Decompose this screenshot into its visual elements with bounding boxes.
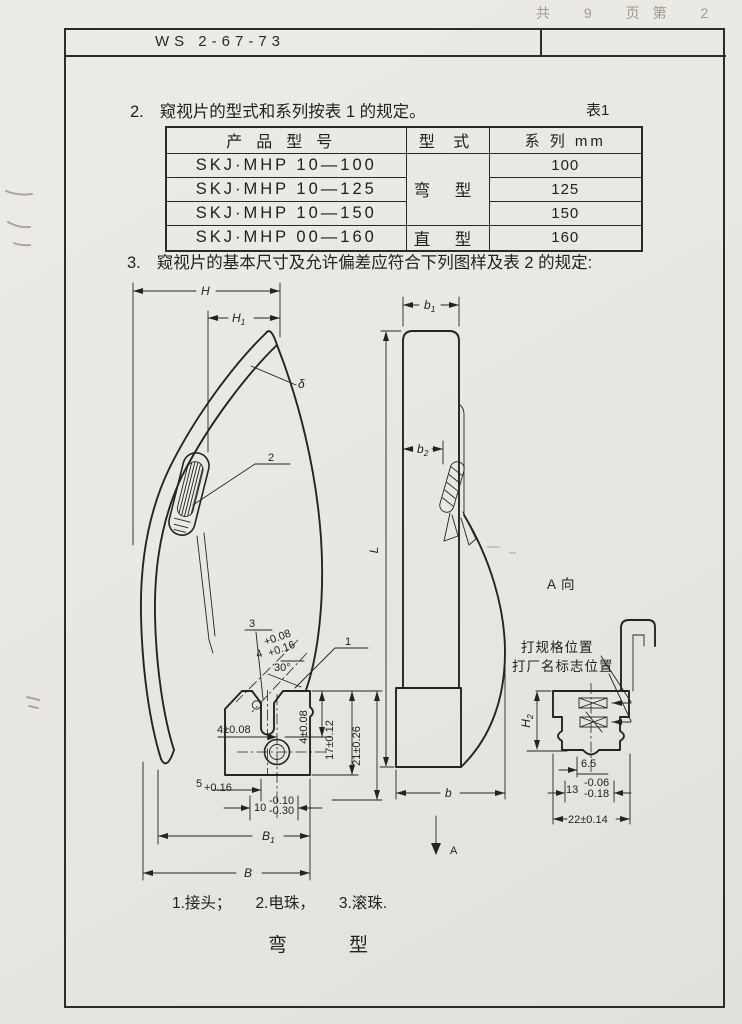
part-3-label: 3	[249, 618, 255, 630]
legend-item-2: 2.电珠，	[255, 891, 314, 913]
dim-B-label: B	[244, 866, 252, 880]
dim-H1-label: H1	[232, 311, 246, 327]
dim-13-label: 13	[566, 784, 578, 796]
dim-delta-label: δ	[298, 377, 305, 391]
dim-6-5-label: 6.5	[581, 758, 596, 770]
parts-legend: 1.接头； 2.电珠， 3.滚珠.	[172, 891, 387, 913]
part-1-label: 1	[345, 636, 351, 648]
dim-4-right-label: 4±0.08	[298, 710, 310, 744]
right-view-A: A 向 打规格位置 打厂名标志位置 H2 6	[512, 577, 655, 826]
dim-22-label: 22±0.14	[568, 814, 608, 826]
dim-L-label: L	[367, 547, 381, 554]
dim-17-label: 17±0.12	[324, 720, 336, 760]
technical-drawing: H H1 δ 2 3 1 4 +0.08 +0.16 30°	[0, 0, 742, 1024]
middle-view-side: b1 b2 L b A	[367, 297, 505, 857]
dim-angle-label: 30°	[274, 662, 291, 674]
scanned-standard-page: 共 9 页第 2 页 WS 2-67-73 2.窥视片的型式和系列按表 1 的规…	[0, 0, 742, 1024]
part-2-label: 2	[268, 452, 274, 464]
view-A-title: A 向	[547, 577, 576, 592]
caption-char-bent: 弯	[268, 930, 287, 957]
dim-slot-width: 4 +0.08 +0.16	[251, 628, 297, 664]
dim-b1-label: b1	[424, 298, 436, 314]
svg-text:4: 4	[254, 648, 264, 661]
roller-ball	[252, 701, 260, 709]
dim-b-label: b	[445, 786, 452, 800]
dim-B1-label: B1	[262, 829, 275, 845]
caption-char-type: 型	[349, 930, 368, 957]
dim-4-left-label: 4±0.08	[217, 724, 251, 736]
view-arrow-A-label: A	[450, 845, 458, 857]
dim-H-label: H	[201, 284, 210, 298]
stamp-name-note: 打厂名标志位置	[512, 658, 614, 674]
legend-item-3: 3.滚珠.	[339, 891, 387, 913]
bulb-side-view	[438, 460, 466, 514]
dim-H2-label: H2	[519, 714, 535, 728]
left-view-bent-blade: H H1 δ 2 3 1 4 +0.08 +0.16 30°	[133, 283, 382, 880]
dim-21-label: 21±0.26	[351, 726, 363, 766]
figure-caption: 弯 型	[268, 930, 368, 957]
dim-13-sub: -0.18	[584, 788, 609, 800]
dim-b2-label: b2	[417, 442, 429, 458]
dim-10-label: 10	[254, 802, 266, 814]
dim-5-tol: +0.16	[204, 782, 232, 794]
legend-item-1: 1.接头；	[172, 891, 231, 913]
dim-5-label: 5	[196, 778, 202, 790]
stamp-spec-note: 打规格位置	[521, 639, 594, 655]
dim-10-sub: -0.30	[269, 805, 294, 817]
